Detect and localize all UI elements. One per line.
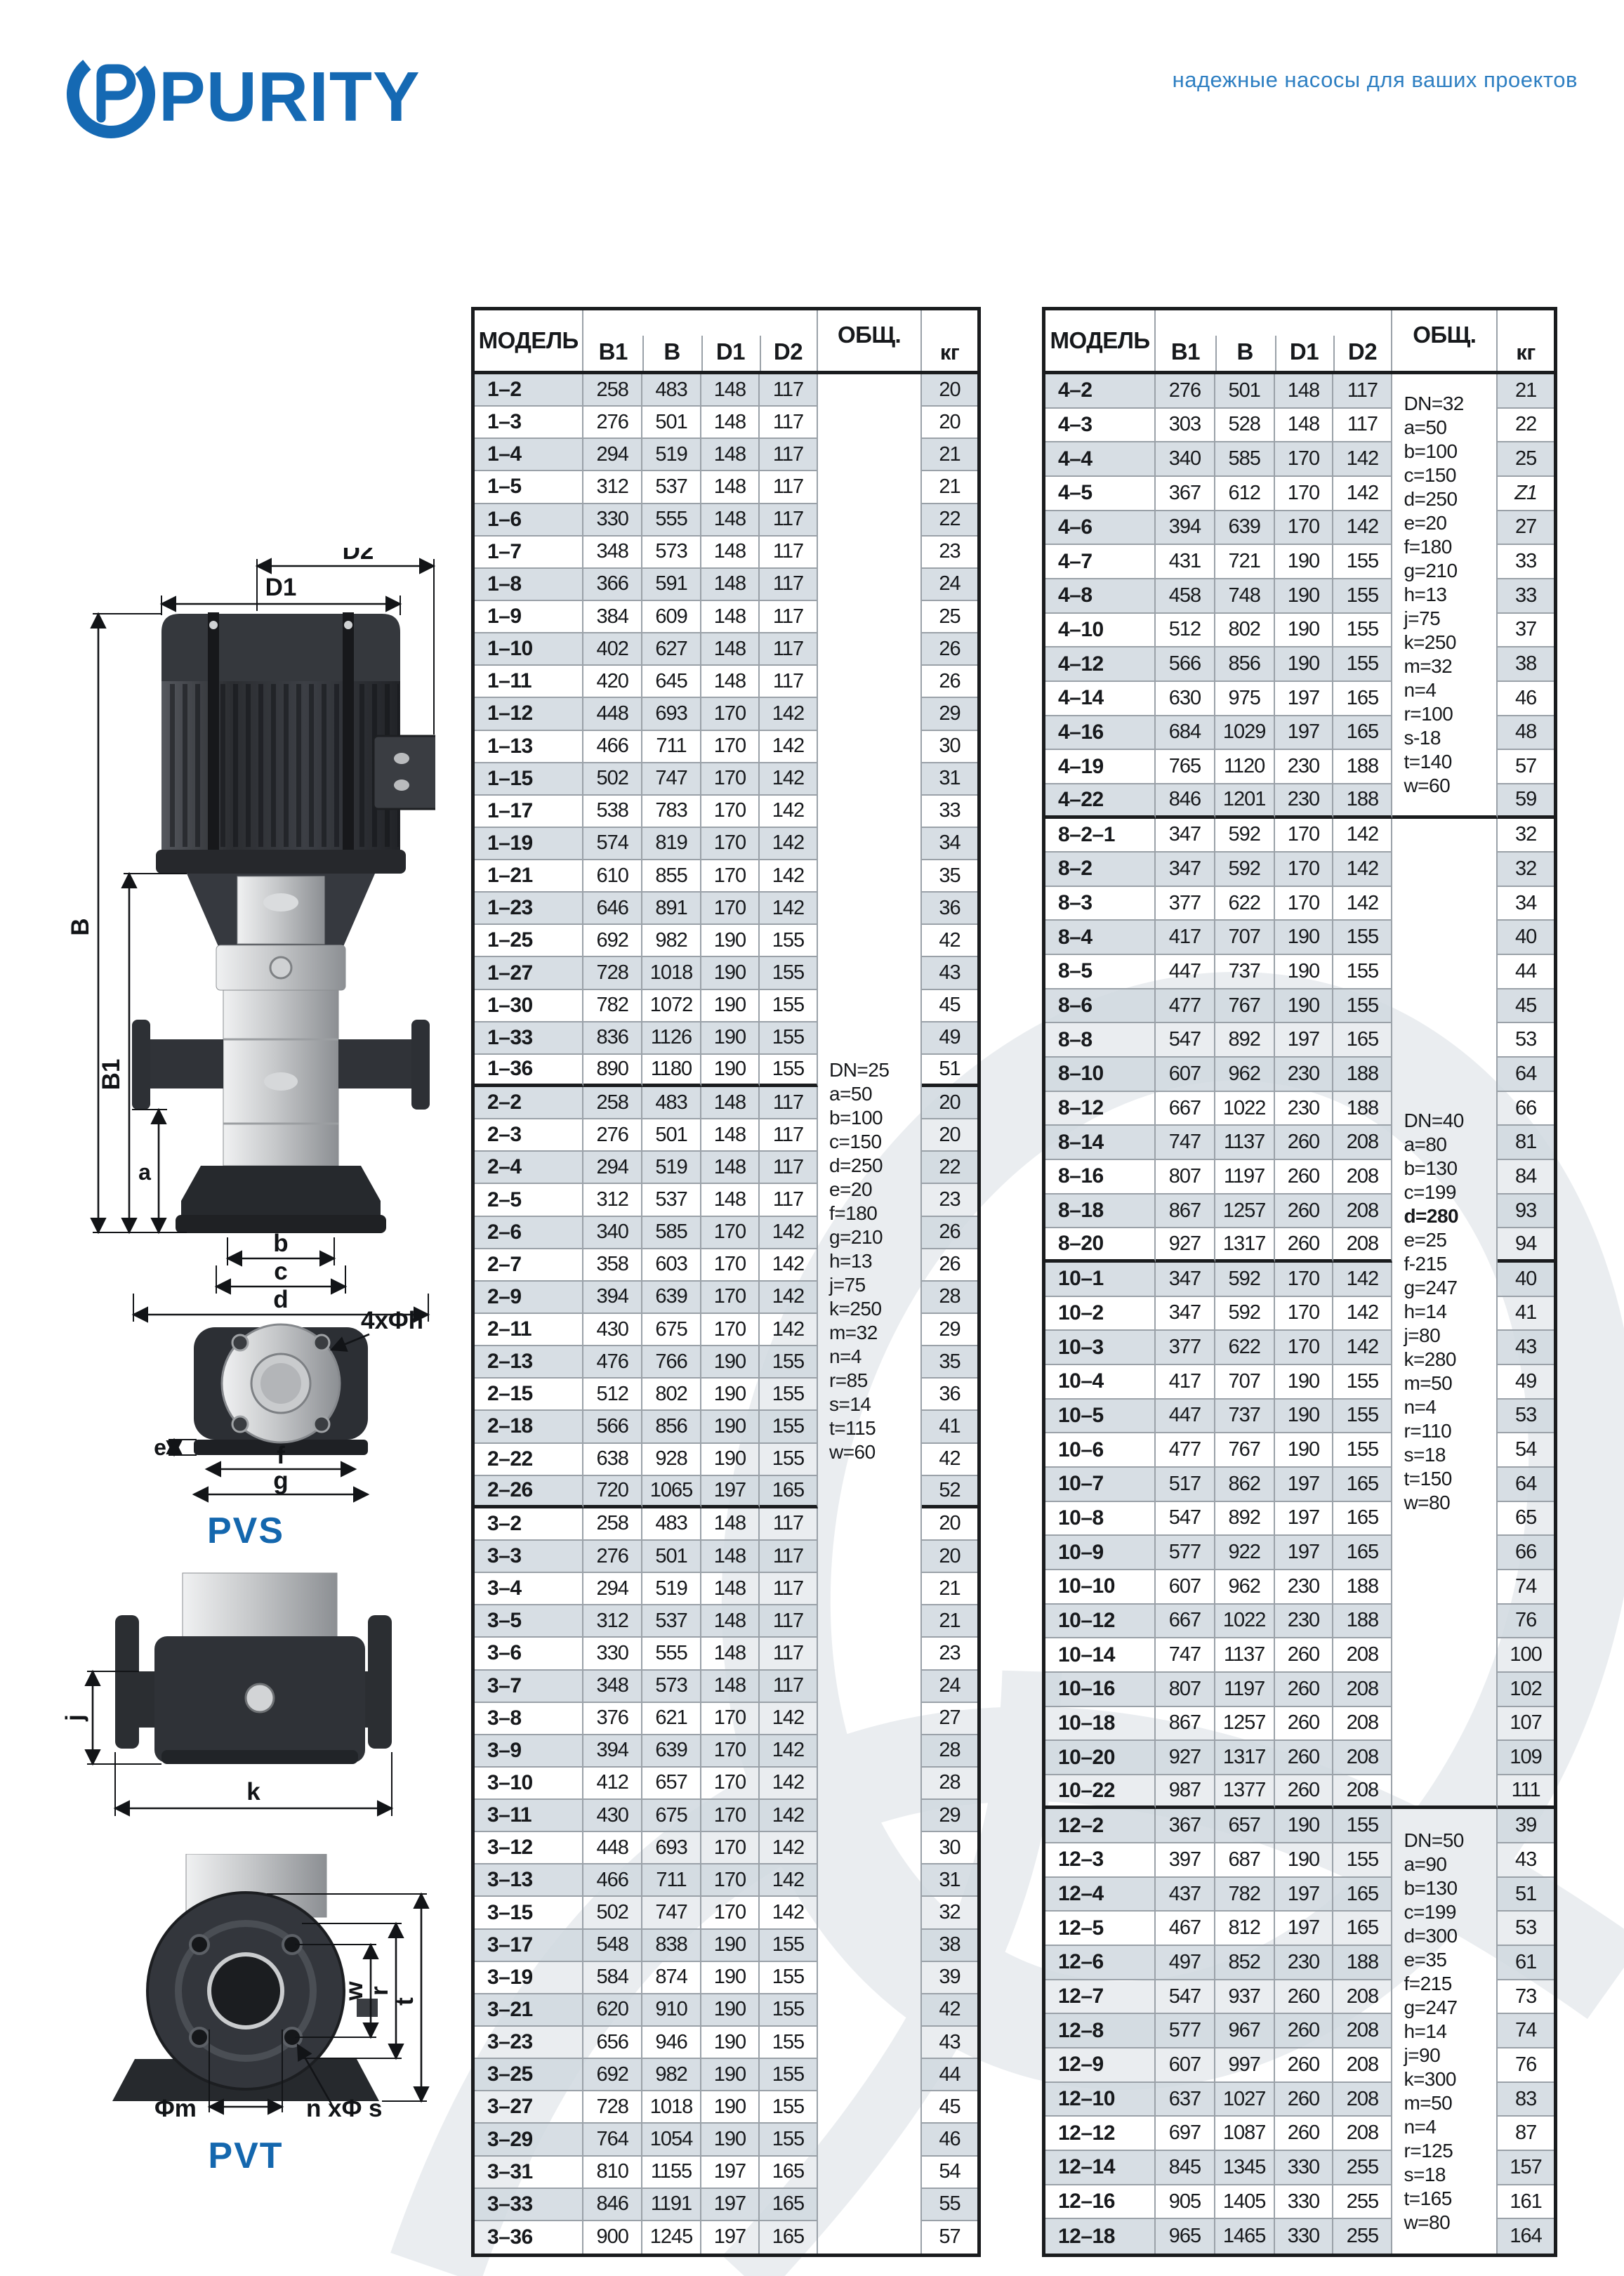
- dimension-cell: 260: [1275, 1741, 1334, 1775]
- dimension-cell: 420: [583, 666, 642, 698]
- dimension-cell: 501: [642, 1119, 701, 1152]
- dimension-cell: 856: [642, 1411, 701, 1443]
- dimension-cell: 1137: [1215, 1638, 1275, 1673]
- dimension-cell: 592: [1215, 1297, 1275, 1331]
- dimension-cell: 142: [1333, 887, 1392, 921]
- dimension-cell: 417: [1156, 1365, 1215, 1400]
- weight-cell: 42: [922, 1994, 977, 2027]
- model-cell: 10–8: [1045, 1502, 1156, 1537]
- dimension-cell: 347: [1156, 853, 1215, 887]
- spec-line: k=300: [1404, 2067, 1463, 2091]
- dimension-cell: 155: [1333, 545, 1392, 579]
- column-header-kg: кг: [922, 310, 977, 371]
- spec-line: a=90: [1404, 1853, 1463, 1876]
- discharge-flange: [411, 1020, 430, 1110]
- model-cell: 3–7: [475, 1671, 583, 1703]
- dimension-cell: 592: [1215, 819, 1275, 853]
- dimension-cell: 810: [583, 2157, 642, 2189]
- model-cell: 8–8: [1045, 1023, 1156, 1058]
- weight-cell: 26: [922, 633, 977, 666]
- weight-cell: 31: [922, 763, 977, 796]
- model-cell: 1–33: [475, 1022, 583, 1055]
- model-cell: 8–6: [1045, 989, 1156, 1024]
- dimension-cell: 367: [1156, 477, 1215, 511]
- purity-logo-text: PURITY: [159, 58, 421, 136]
- weight-cell: 29: [922, 1314, 977, 1346]
- dimension-cell: 384: [583, 601, 642, 633]
- column-header-obsh: ОБЩ.: [1392, 310, 1498, 371]
- dimension-cell: 747: [1156, 1638, 1215, 1673]
- dim-label-b-cap: B: [67, 918, 94, 935]
- weight-cell: 94: [1498, 1228, 1554, 1263]
- model-cell: 12–6: [1045, 1946, 1156, 1980]
- dimension-cell: 547: [1156, 1980, 1215, 2015]
- dimension-cell: 188: [1333, 1570, 1392, 1605]
- dimension-cell: 170: [701, 1897, 760, 1929]
- dimension-cell: 155: [1333, 1365, 1392, 1400]
- weight-cell: 21: [922, 1573, 977, 1605]
- dimension-cell: 747: [1156, 1126, 1215, 1160]
- dimension-cell: 170: [701, 1249, 760, 1282]
- dimension-cell: 190: [701, 1411, 760, 1443]
- dimension-cell: 692: [583, 2059, 642, 2091]
- spec-line: w=80: [1404, 1491, 1463, 1515]
- model-cell: 12–8: [1045, 2014, 1156, 2048]
- dimension-cell: 155: [1333, 614, 1392, 648]
- dimension-cell: 155: [1333, 989, 1392, 1024]
- spec-line: g=210: [829, 1225, 889, 1249]
- model-cell: 1–5: [475, 471, 583, 504]
- weight-cell: 45: [922, 2091, 977, 2124]
- dimension-cell: 142: [760, 1282, 818, 1314]
- dimension-cell: 347: [1156, 1297, 1215, 1331]
- weight-cell: 31: [922, 1864, 977, 1897]
- dimension-cell: 230: [1275, 1092, 1334, 1126]
- dimension-cell: 585: [642, 1217, 701, 1249]
- model-cell: 1–7: [475, 537, 583, 569]
- weight-cell: 25: [922, 601, 977, 633]
- model-cell: 3–33: [475, 2189, 583, 2221]
- spec-line: a=50: [1404, 416, 1463, 440]
- dimension-cell: 856: [1215, 647, 1275, 682]
- weight-cell: 59: [1498, 784, 1554, 819]
- dimension-cell: 208: [1333, 2048, 1392, 2083]
- model-cell: 12–9: [1045, 2048, 1156, 2083]
- dimension-cell: 142: [760, 828, 818, 860]
- weight-cell: 107: [1498, 1707, 1554, 1742]
- dimension-cell: 170: [701, 1735, 760, 1768]
- dimension-cell: 330: [583, 1638, 642, 1670]
- spec-line: f-215: [1404, 1252, 1463, 1276]
- weight-cell: 41: [922, 1411, 977, 1443]
- dimension-cell: 117: [760, 1152, 818, 1184]
- dimension-cell: 155: [760, 925, 818, 957]
- weight-cell: 23: [922, 1184, 977, 1216]
- dimension-cell: 603: [642, 1249, 701, 1282]
- dimension-cell: 260: [1275, 2083, 1334, 2117]
- dimension-cell: 891: [642, 893, 701, 925]
- dimension-cell: 747: [642, 1897, 701, 1929]
- weight-cell: 87: [1498, 2117, 1554, 2151]
- dimension-cell: 900: [583, 2221, 642, 2254]
- dim-label-m: Φm: [154, 2095, 197, 2121]
- dim-label-k: k: [246, 1778, 260, 1805]
- dimension-cell: 1018: [642, 2091, 701, 2124]
- dimension-cell: 260: [1275, 1638, 1334, 1673]
- dimension-cell: 466: [583, 1864, 642, 1897]
- dimension-cell: 782: [1215, 1878, 1275, 1912]
- model-cell: 8–18: [1045, 1195, 1156, 1229]
- dimension-cell: 675: [642, 1800, 701, 1832]
- dimension-cell: 148: [701, 1152, 760, 1184]
- dimension-cell: 148: [701, 537, 760, 569]
- model-cell: 3–36: [475, 2221, 583, 2254]
- dimension-cell: 148: [701, 601, 760, 633]
- dimension-cell: 117: [760, 537, 818, 569]
- model-cell: 12–14: [1045, 2151, 1156, 2185]
- dimension-cell: 555: [642, 504, 701, 537]
- weight-cell: 46: [922, 2124, 977, 2156]
- dimension-cell: 675: [642, 1314, 701, 1346]
- dimension-cell: 584: [583, 1962, 642, 1994]
- weight-cell: 51: [1498, 1878, 1554, 1912]
- dimension-cell: 208: [1333, 2014, 1392, 2048]
- dimension-cell: 927: [1156, 1741, 1215, 1775]
- dimension-cell: 728: [583, 2091, 642, 2124]
- dimension-cell: 637: [1156, 2083, 1215, 2117]
- dimension-cell: 170: [701, 860, 760, 893]
- dimension-cell: 142: [760, 1832, 818, 1864]
- model-cell: 12–10: [1045, 2083, 1156, 2117]
- model-cell: 1–6: [475, 504, 583, 537]
- table-body: 4–2276501148117214–3303528148117224–4340…: [1045, 374, 1554, 2254]
- weight-cell: 27: [922, 1703, 977, 1735]
- weight-cell: 28: [922, 1735, 977, 1768]
- dimension-cell: 1191: [642, 2189, 701, 2221]
- dimension-cell: 910: [642, 1994, 701, 2027]
- dimension-cell: 620: [583, 1994, 642, 2027]
- dimension-cell: 639: [642, 1735, 701, 1768]
- dimension-cell: 155: [760, 1055, 818, 1087]
- weight-cell: 44: [1498, 955, 1554, 989]
- weight-cell: 21: [922, 439, 977, 471]
- dimension-cell: 476: [583, 1346, 642, 1379]
- spec-line: t=140: [1404, 750, 1463, 774]
- dimension-cell: 117: [760, 471, 818, 504]
- dimension-cell: 117: [760, 1184, 818, 1216]
- dimension-cell: 165: [760, 2189, 818, 2221]
- dimension-cell: 646: [583, 893, 642, 925]
- model-cell: 2–9: [475, 1282, 583, 1314]
- dimension-cell: 448: [583, 698, 642, 730]
- dimension-cell: 260: [1275, 1126, 1334, 1160]
- dimension-cell: 170: [701, 698, 760, 730]
- spec-line: r=85: [829, 1369, 889, 1393]
- dimension-cell: 142: [760, 1703, 818, 1735]
- model-cell: 8–4: [1045, 921, 1156, 955]
- dimension-cell: 117: [760, 504, 818, 537]
- dimension-cell: 190: [1275, 955, 1334, 989]
- dimension-cell: 155: [760, 1346, 818, 1379]
- weight-cell: 25: [1498, 442, 1554, 477]
- weight-cell: 26: [922, 666, 977, 698]
- model-cell: 8–16: [1045, 1160, 1156, 1195]
- dimension-cell: 165: [760, 2221, 818, 2254]
- weight-cell: 46: [1498, 682, 1554, 716]
- dimension-cell: 330: [1275, 2219, 1334, 2254]
- dimension-cell: 142: [760, 860, 818, 893]
- dimension-cell: 142: [760, 1768, 818, 1800]
- model-cell: 1–9: [475, 601, 583, 633]
- dimension-cell: 447: [1156, 955, 1215, 989]
- dimension-cell: 519: [642, 439, 701, 471]
- dimension-cell: 737: [1215, 1400, 1275, 1434]
- column-header-d2: D2: [1333, 310, 1392, 371]
- dimension-cell: 767: [1215, 989, 1275, 1024]
- dimension-cell: 312: [583, 1184, 642, 1216]
- column-header-b: B: [1215, 310, 1275, 371]
- dimension-cell: 537: [642, 1605, 701, 1638]
- dimension-cell: 230: [1275, 784, 1334, 819]
- model-cell: 2–3: [475, 1119, 583, 1152]
- dimension-cell: 155: [760, 1444, 818, 1476]
- dimension-cell: 867: [1156, 1195, 1215, 1229]
- dimension-cell: 155: [760, 1930, 818, 1962]
- dimension-cell: 430: [583, 1314, 642, 1346]
- dim-label-d: d: [273, 1286, 288, 1313]
- dimension-cell: 148: [701, 569, 760, 601]
- dimension-cell: 117: [760, 1573, 818, 1605]
- dimension-cell: 188: [1333, 750, 1392, 784]
- dimension-cell: 142: [1333, 1297, 1392, 1331]
- weight-cell: 33: [922, 796, 977, 828]
- weight-cell: 164: [1498, 2219, 1554, 2254]
- dimension-cell: 190: [701, 1444, 760, 1476]
- dimension-cell: 190: [1275, 1400, 1334, 1434]
- model-cell: 8–5: [1045, 955, 1156, 989]
- spec-line: s=14: [829, 1393, 889, 1416]
- dimension-cell: 862: [1215, 1468, 1275, 1502]
- model-cell: 1–11: [475, 666, 583, 698]
- column-header-model: МОДЕЛЬ: [1045, 310, 1156, 371]
- dimension-cell: 477: [1156, 989, 1215, 1024]
- dimension-cell: 148: [701, 1184, 760, 1216]
- dimension-cell: 1197: [1215, 1673, 1275, 1707]
- dimension-cell: 165: [1333, 1023, 1392, 1058]
- dimension-cell: 855: [642, 860, 701, 893]
- dimension-cell: 148: [701, 471, 760, 504]
- dimension-cell: 170: [701, 1832, 760, 1864]
- model-cell: 3–15: [475, 1897, 583, 1929]
- dimension-cell: 394: [583, 1282, 642, 1314]
- dimension-cell: 170: [701, 1217, 760, 1249]
- weight-cell: 37: [1498, 614, 1554, 648]
- dimension-cell: 607: [1156, 1570, 1215, 1605]
- spec-line: h=13: [829, 1249, 889, 1273]
- weight-cell: 64: [1498, 1058, 1554, 1092]
- dim-label-d1: D1: [265, 574, 297, 601]
- dimension-cell: 190: [1275, 647, 1334, 682]
- dimension-cell: 188: [1333, 1605, 1392, 1639]
- dimension-cell: 592: [1215, 1263, 1275, 1297]
- weight-cell: 38: [1498, 647, 1554, 682]
- dimension-cell: 303: [1156, 409, 1215, 443]
- dimensions-table-left: МОДЕЛЬB1BD1D2ОБЩ.кг 1–2258483148117201–3…: [471, 307, 981, 2257]
- model-cell: 4–2: [1045, 374, 1156, 409]
- dimension-cell: 170: [701, 1703, 760, 1735]
- model-cell: 3–19: [475, 1962, 583, 1994]
- dimension-cell: 621: [642, 1703, 701, 1735]
- model-cell: 4–7: [1045, 545, 1156, 579]
- model-cell: 12–7: [1045, 1980, 1156, 2015]
- connection-spec-block: DN=32a=50b=100c=150d=250e=20f=180g=210h=…: [1392, 374, 1498, 819]
- weight-cell: 24: [922, 569, 977, 601]
- weight-cell: 93: [1498, 1195, 1554, 1229]
- model-cell: 10–3: [1045, 1331, 1156, 1365]
- dimension-cell: 294: [583, 439, 642, 471]
- weight-cell: 41: [1498, 1297, 1554, 1331]
- pvt-series-label: PVT: [56, 2135, 435, 2177]
- dimension-cell: 170: [701, 1282, 760, 1314]
- dimension-cell: 170: [1275, 477, 1334, 511]
- model-cell: 10–2: [1045, 1297, 1156, 1331]
- dimension-cell: 697: [1156, 2117, 1215, 2151]
- dimension-cell: 802: [642, 1379, 701, 1411]
- dimension-cell: 276: [583, 1541, 642, 1573]
- dimension-cell: 255: [1333, 2219, 1392, 2254]
- dimension-cell: 155: [760, 957, 818, 989]
- dimension-cell: 765: [1156, 750, 1215, 784]
- model-cell: 1–17: [475, 796, 583, 828]
- spec-line: c=199: [1404, 1900, 1463, 1924]
- spec-line: h=13: [1404, 583, 1463, 607]
- dimension-cell: 170: [1275, 1331, 1334, 1365]
- dimension-cell: 1377: [1215, 1775, 1275, 1810]
- dimension-cell: 260: [1275, 2014, 1334, 2048]
- weight-cell: 35: [922, 860, 977, 893]
- weight-cell: 51: [922, 1055, 977, 1087]
- dimension-cell: 258: [583, 1087, 642, 1119]
- spec-line: m=50: [1404, 1371, 1463, 1395]
- dimension-cell: 258: [583, 1508, 642, 1541]
- dimension-cell: 170: [701, 893, 760, 925]
- model-cell: 12–4: [1045, 1878, 1156, 1912]
- dimension-cell: 155: [1333, 1433, 1392, 1468]
- dimension-cell: 188: [1333, 1058, 1392, 1092]
- weight-cell: 32: [922, 1897, 977, 1929]
- dimension-cell: 412: [583, 1768, 642, 1800]
- spec-line: b=100: [829, 1106, 889, 1130]
- dimension-cell: 208: [1333, 1228, 1392, 1263]
- dimension-cell: 190: [701, 990, 760, 1022]
- dimension-cell: 148: [701, 1638, 760, 1670]
- table-header: МОДЕЛЬB1BD1D2ОБЩ.кг: [475, 310, 977, 374]
- dimension-cell: 377: [1156, 887, 1215, 921]
- dimension-cell: 890: [583, 1055, 642, 1087]
- spec-line: b=130: [1404, 1876, 1463, 1900]
- dimension-cell: 148: [701, 1541, 760, 1573]
- spec-line: n=4: [1404, 678, 1463, 702]
- spec-line: e=35: [1404, 1948, 1463, 1972]
- weight-cell: 43: [922, 957, 977, 989]
- model-cell: 3–21: [475, 1994, 583, 2027]
- dimension-cell: 208: [1333, 1160, 1392, 1195]
- dimension-cell: 148: [701, 439, 760, 471]
- spec-line: j=80: [1404, 1324, 1463, 1348]
- dimension-cell: 517: [1156, 1468, 1215, 1502]
- model-cell: 12–5: [1045, 1912, 1156, 1946]
- dimension-cell: 466: [583, 731, 642, 763]
- dimension-cell: 519: [642, 1573, 701, 1605]
- dimension-cell: 155: [760, 1022, 818, 1055]
- dimension-cell: 501: [642, 407, 701, 439]
- model-cell: 2–5: [475, 1184, 583, 1216]
- weight-cell: 45: [922, 990, 977, 1022]
- model-cell: 3–11: [475, 1800, 583, 1832]
- dimension-cell: 190: [701, 1994, 760, 2027]
- weight-cell: 28: [922, 1282, 977, 1314]
- dimension-cell: 502: [583, 763, 642, 796]
- dimension-cell: 294: [583, 1573, 642, 1605]
- dimension-cell: 165: [1333, 1468, 1392, 1502]
- model-cell: 3–6: [475, 1638, 583, 1670]
- dimension-cell: 165: [760, 1476, 818, 1508]
- dimension-cell: 728: [583, 957, 642, 989]
- dimension-cell: 692: [583, 925, 642, 957]
- spec-line: f=215: [1404, 1972, 1463, 1996]
- weight-cell: 61: [1498, 1946, 1554, 1980]
- weight-cell: 20: [922, 407, 977, 439]
- spec-line: b=100: [1404, 440, 1463, 463]
- model-cell: 3–12: [475, 1832, 583, 1864]
- dimension-cell: 170: [701, 731, 760, 763]
- model-cell: 3–31: [475, 2157, 583, 2189]
- dimension-cell: 874: [642, 1962, 701, 1994]
- dimension-cell: 657: [1215, 1809, 1275, 1843]
- dim-label-d2: D2: [343, 548, 374, 565]
- dimension-cell: 367: [1156, 1809, 1215, 1843]
- dimension-cell: 294: [583, 1152, 642, 1184]
- dimension-cell: 417: [1156, 921, 1215, 955]
- dimension-cell: 208: [1333, 2083, 1392, 2117]
- column-header-b1: B1: [583, 310, 642, 371]
- model-cell: 10–6: [1045, 1433, 1156, 1468]
- spec-line: m=32: [1404, 654, 1463, 678]
- dimension-cell: 737: [1215, 955, 1275, 989]
- model-cell: 2–11: [475, 1314, 583, 1346]
- model-cell: 2–2: [475, 1087, 583, 1119]
- spec-line: m=50: [1404, 2091, 1463, 2115]
- dimension-cell: 148: [701, 1119, 760, 1152]
- dimension-cell: 1245: [642, 2221, 701, 2254]
- dimension-cell: 340: [583, 1217, 642, 1249]
- dimension-cell: 117: [760, 1508, 818, 1541]
- dimension-cell: 622: [1215, 1331, 1275, 1365]
- dimension-cell: 846: [583, 2189, 642, 2221]
- spec-line: k=280: [1404, 1348, 1463, 1371]
- dimension-cell: 208: [1333, 1741, 1392, 1775]
- dimension-cell: 276: [583, 1119, 642, 1152]
- dimension-cell: 197: [1275, 1536, 1334, 1570]
- dimension-cell: 607: [1156, 2048, 1215, 2083]
- dimension-cell: 155: [1333, 921, 1392, 955]
- weight-cell: 42: [922, 1444, 977, 1476]
- dimension-cell: 1317: [1215, 1228, 1275, 1263]
- dimension-cell: 764: [583, 2124, 642, 2156]
- dimension-cell: 148: [701, 1087, 760, 1119]
- dimension-cell: 657: [642, 1768, 701, 1800]
- dimension-cell: 928: [642, 1444, 701, 1476]
